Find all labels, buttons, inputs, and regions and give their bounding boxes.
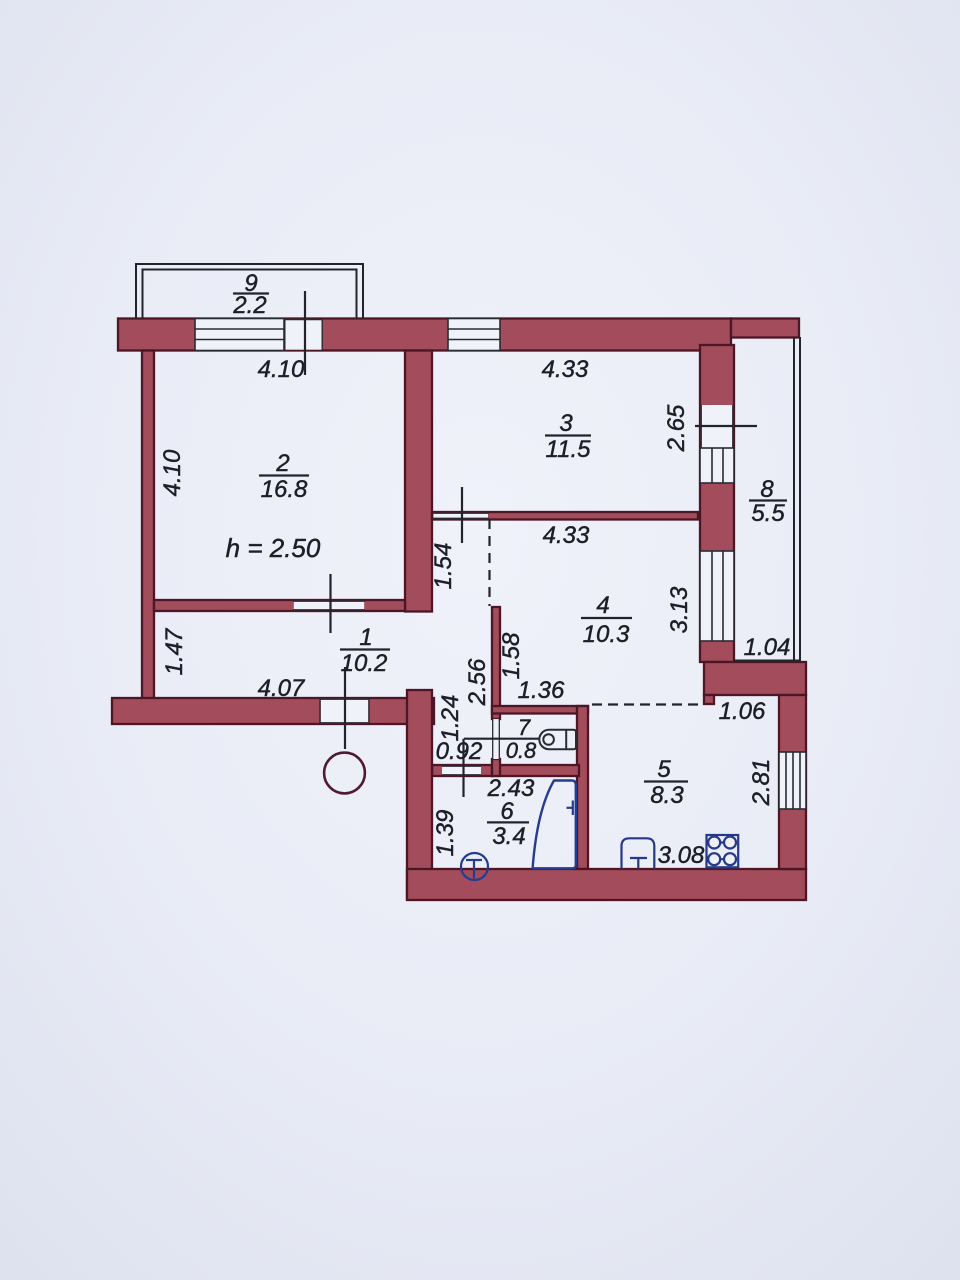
svg-text:1: 1 [359, 624, 372, 651]
svg-text:11.5: 11.5 [546, 436, 592, 463]
svg-text:2: 2 [275, 450, 289, 477]
svg-text:2.81: 2.81 [748, 759, 775, 807]
svg-text:8.3: 8.3 [650, 782, 684, 809]
svg-text:3.08: 3.08 [658, 842, 705, 869]
svg-text:2.56: 2.56 [464, 658, 491, 706]
svg-text:1.04: 1.04 [744, 634, 791, 661]
svg-text:2.2: 2.2 [232, 292, 266, 319]
svg-text:10.2: 10.2 [341, 650, 388, 677]
svg-text:1.36: 1.36 [518, 677, 565, 704]
svg-text:0.8: 0.8 [506, 738, 537, 763]
svg-text:3: 3 [559, 410, 573, 437]
svg-text:5.5: 5.5 [751, 500, 785, 527]
svg-text:16.8: 16.8 [261, 476, 308, 503]
svg-text:1.54: 1.54 [430, 543, 457, 590]
svg-text:5: 5 [657, 756, 671, 783]
svg-text:0.92: 0.92 [436, 738, 483, 765]
svg-text:1.58: 1.58 [498, 632, 525, 679]
svg-text:10.3: 10.3 [583, 621, 630, 648]
svg-text:4.07: 4.07 [258, 675, 306, 702]
svg-text:1.24: 1.24 [437, 695, 464, 742]
svg-text:1.39: 1.39 [432, 810, 459, 857]
svg-text:1.06: 1.06 [719, 698, 766, 725]
svg-text:8: 8 [760, 476, 774, 503]
svg-text:h = 2.50: h = 2.50 [226, 533, 321, 563]
svg-text:3.13: 3.13 [666, 586, 693, 633]
svg-text:3.4: 3.4 [492, 823, 525, 850]
svg-text:1.47: 1.47 [161, 627, 188, 675]
svg-text:7: 7 [518, 715, 531, 740]
svg-text:4: 4 [596, 592, 609, 619]
svg-text:4.33: 4.33 [543, 522, 590, 549]
svg-text:4.33: 4.33 [542, 356, 589, 383]
svg-text:6: 6 [500, 798, 514, 825]
svg-text:4.10: 4.10 [159, 449, 186, 496]
svg-text:4.10: 4.10 [258, 356, 305, 383]
svg-text:2.65: 2.65 [663, 404, 690, 452]
